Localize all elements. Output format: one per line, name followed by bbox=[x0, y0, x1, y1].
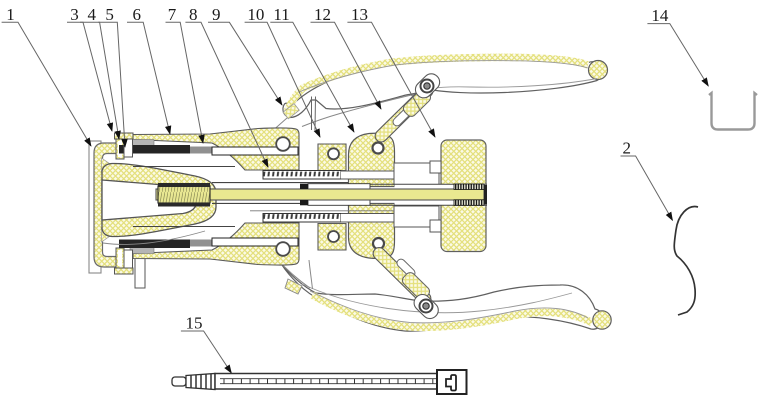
svg-text:12: 12 bbox=[314, 5, 331, 24]
svg-text:1: 1 bbox=[6, 5, 15, 24]
svg-text:5: 5 bbox=[105, 5, 114, 24]
svg-text:2: 2 bbox=[622, 138, 631, 157]
svg-text:10: 10 bbox=[247, 5, 264, 24]
svg-text:9: 9 bbox=[212, 5, 221, 24]
svg-text:8: 8 bbox=[189, 5, 198, 24]
svg-text:13: 13 bbox=[351, 5, 368, 24]
svg-text:7: 7 bbox=[168, 5, 177, 24]
svg-text:4: 4 bbox=[87, 5, 96, 24]
svg-text:11: 11 bbox=[273, 5, 289, 24]
svg-text:3: 3 bbox=[70, 5, 79, 24]
svg-text:14: 14 bbox=[651, 6, 669, 25]
svg-text:6: 6 bbox=[133, 5, 142, 24]
svg-text:15: 15 bbox=[186, 314, 203, 333]
